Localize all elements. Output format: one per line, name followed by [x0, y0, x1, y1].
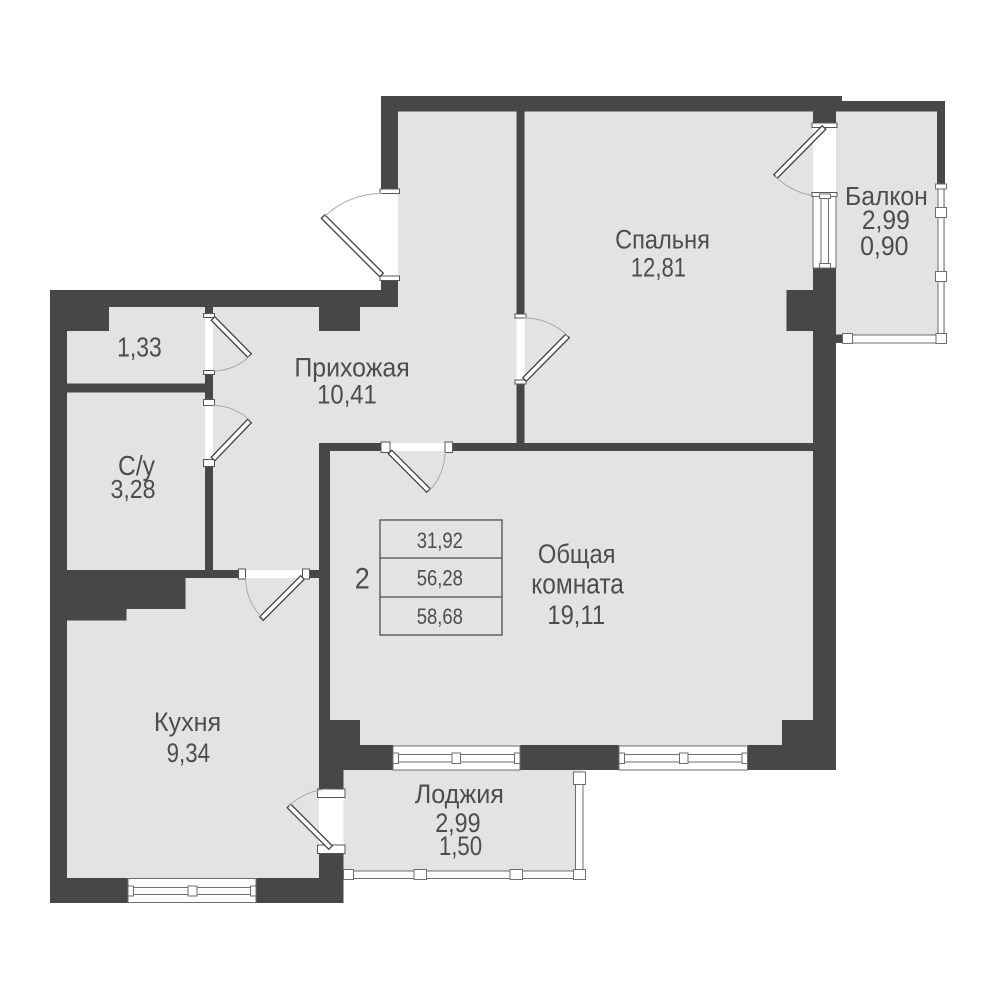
svg-text:комната: комната [531, 568, 624, 600]
svg-text:Лоджия: Лоджия [415, 780, 504, 809]
svg-text:58,68: 58,68 [417, 606, 463, 630]
svg-text:Спальня: Спальня [615, 225, 710, 255]
svg-text:1,50: 1,50 [439, 832, 482, 861]
svg-text:0,90: 0,90 [860, 232, 908, 261]
svg-text:1,33: 1,33 [117, 333, 162, 364]
svg-text:10,41: 10,41 [317, 380, 377, 409]
svg-text:56,28: 56,28 [417, 567, 463, 591]
svg-text:2: 2 [355, 562, 370, 596]
svg-text:Прихожая: Прихожая [294, 354, 409, 383]
svg-text:2,99: 2,99 [862, 206, 910, 235]
svg-text:31,92: 31,92 [417, 530, 463, 554]
svg-text:Общая: Общая [538, 540, 616, 570]
svg-text:12,81: 12,81 [631, 253, 686, 283]
svg-text:Кухня: Кухня [154, 708, 221, 737]
svg-text:9,34: 9,34 [167, 739, 210, 768]
svg-text:19,11: 19,11 [547, 601, 605, 631]
svg-text:3,28: 3,28 [110, 476, 155, 505]
